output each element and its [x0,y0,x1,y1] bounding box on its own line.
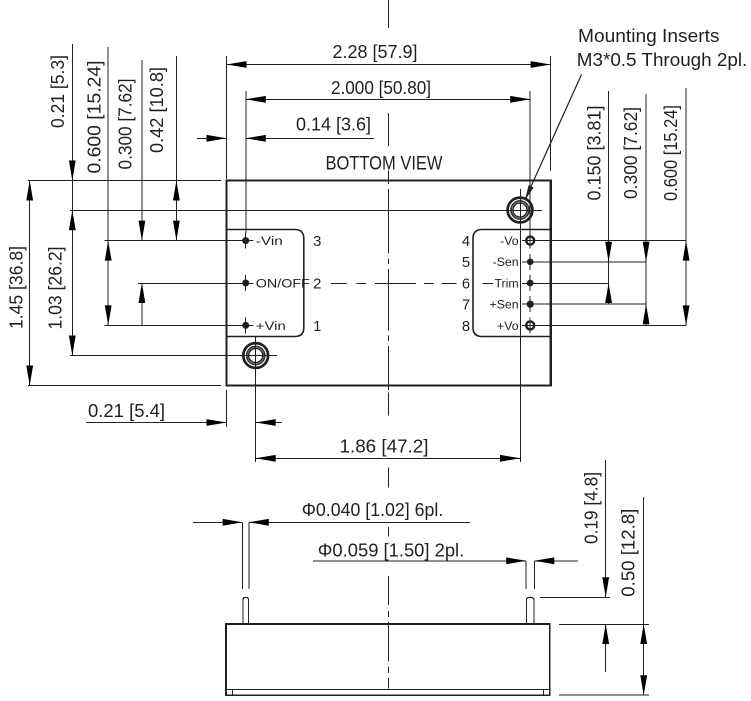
svg-text:0.600 [15.24]: 0.600 [15.24] [661,105,681,201]
svg-text:M3*0.5 Through 2pl.: M3*0.5 Through 2pl. [577,50,748,70]
svg-text:Mounting Inserts: Mounting Inserts [578,26,720,46]
svg-text:5: 5 [462,255,470,271]
svg-text:8: 8 [462,319,470,335]
svg-text:0.300 [7.62]: 0.300 [7.62] [621,107,641,199]
svg-text:+Sen: +Sen [490,298,519,312]
svg-text:-Vo: -Vo [500,234,519,248]
svg-text:ON/OFF: ON/OFF [256,276,311,290]
svg-text:0.600 [15.24]: 0.600 [15.24] [84,61,104,174]
svg-text:3: 3 [313,234,321,250]
svg-text:0.42 [10.8]: 0.42 [10.8] [147,67,167,153]
svg-text:+Vo: +Vo [497,319,519,333]
svg-text:0.150 [3.81]: 0.150 [3.81] [584,106,604,201]
svg-text:0.19 [4.8]: 0.19 [4.8] [581,472,601,544]
svg-text:1.45 [36.8]: 1.45 [36.8] [7,246,27,329]
svg-text:0.21 [5.3]: 0.21 [5.3] [48,55,68,128]
svg-text:BOTTOM VIEW: BOTTOM VIEW [326,153,444,175]
svg-text:2.28 [57.9]: 2.28 [57.9] [333,42,418,62]
svg-text:-Vin: -Vin [256,234,283,248]
svg-text:7: 7 [462,298,470,314]
svg-text:1.03 [26.2]: 1.03 [26.2] [46,247,66,330]
svg-text:0.14 [3.6]: 0.14 [3.6] [296,115,371,135]
svg-text:0.21 [5.4]: 0.21 [5.4] [88,401,165,421]
svg-text:Trim: Trim [494,276,518,290]
svg-text:Φ0.059 [1.50] 2pl.: Φ0.059 [1.50] 2pl. [318,541,465,561]
svg-text:0.300 [7.62]: 0.300 [7.62] [116,79,136,170]
svg-text:1.86 [47.2]: 1.86 [47.2] [340,437,429,457]
svg-text:4: 4 [462,234,470,250]
svg-text:2: 2 [313,276,321,292]
svg-text:-Sen: -Sen [493,255,519,269]
svg-text:+Vin: +Vin [256,319,286,333]
svg-text:0.50 [12.8]: 0.50 [12.8] [619,509,639,597]
svg-text:2.000 [50.80]: 2.000 [50.80] [331,78,431,98]
svg-text:Φ0.040 [1.02] 6pl.: Φ0.040 [1.02] 6pl. [302,500,444,520]
svg-text:1: 1 [313,319,321,335]
svg-text:6: 6 [462,276,470,292]
